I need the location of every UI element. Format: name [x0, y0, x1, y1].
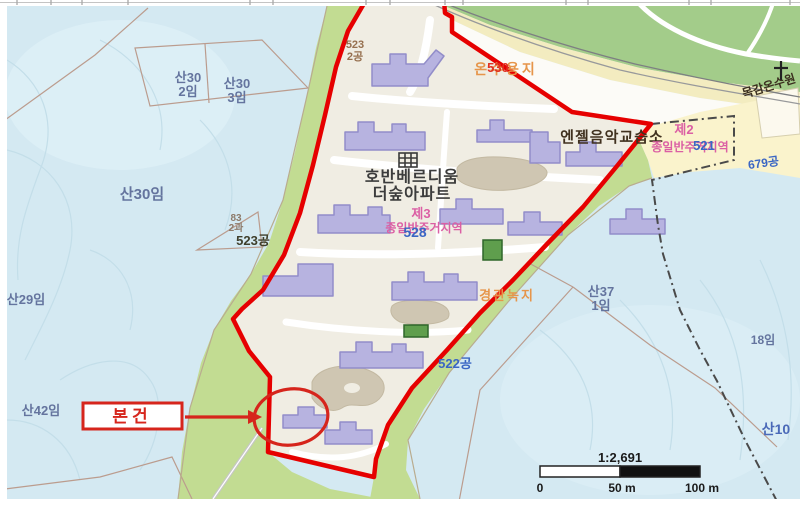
- parcel-label: 산30: [175, 70, 201, 85]
- bottom-margin: [0, 499, 800, 507]
- apartment-name-line2: 더숲아파트: [373, 185, 452, 203]
- zone-label-type2: 제2: [674, 122, 693, 137]
- parcel-label: 산10: [762, 421, 791, 437]
- parcel-label: 2임: [178, 84, 197, 99]
- parcel-label: 523: [346, 39, 364, 51]
- parcel-label: 산42임: [22, 403, 60, 418]
- parcel-label: 산30임: [120, 186, 164, 203]
- parcel-label: 3임: [227, 90, 246, 105]
- poi-label-music-school: 엔젤음악교습소: [560, 128, 664, 146]
- subject-callout-label: 본건: [112, 407, 151, 426]
- parcel-label: 1임: [591, 298, 610, 313]
- cadastral-map-screenshot: 산30 2임 산30 3임 산30임 산29임 산42임 산37 1임 18임 …: [0, 0, 800, 507]
- parcel-label: 528: [403, 224, 427, 240]
- parcel-label: 산29임: [7, 292, 45, 307]
- parcel-label: 521: [693, 138, 715, 153]
- scale-ratio: 1:2,691: [598, 450, 642, 465]
- apartment-name-line1: 호반베르디움: [365, 168, 459, 186]
- parcel-label: 523공: [236, 233, 270, 248]
- left-margin: [0, 6, 7, 507]
- scale-tick-50: 50 m: [608, 481, 635, 495]
- parcel-label: 산30: [224, 76, 250, 91]
- playground-court-2: [404, 325, 428, 337]
- parcel-label: 18임: [751, 333, 775, 347]
- scale-tick-0: 0: [537, 481, 544, 495]
- zone-label-type2: 종일반주거지역: [651, 139, 728, 154]
- parcel-label: 산37: [588, 284, 614, 299]
- parcel-label: 530: [487, 60, 509, 75]
- playground-court-1: [483, 240, 502, 260]
- facility-courtyard: [344, 383, 360, 393]
- scale-tick-100: 100 m: [685, 481, 719, 495]
- scale-bar-white: [540, 466, 620, 477]
- scale-bar-black: [620, 466, 700, 477]
- map-canvas[interactable]: 산30 2임 산30 3임 산30임 산29임 산42임 산37 1임 18임 …: [0, 0, 800, 507]
- zone-label-scenic-green: 경관녹지: [479, 288, 535, 303]
- parcel-label: 2공: [347, 50, 363, 63]
- parcel-label: 522공: [438, 356, 472, 371]
- zone-label-type3: 제3: [411, 206, 430, 221]
